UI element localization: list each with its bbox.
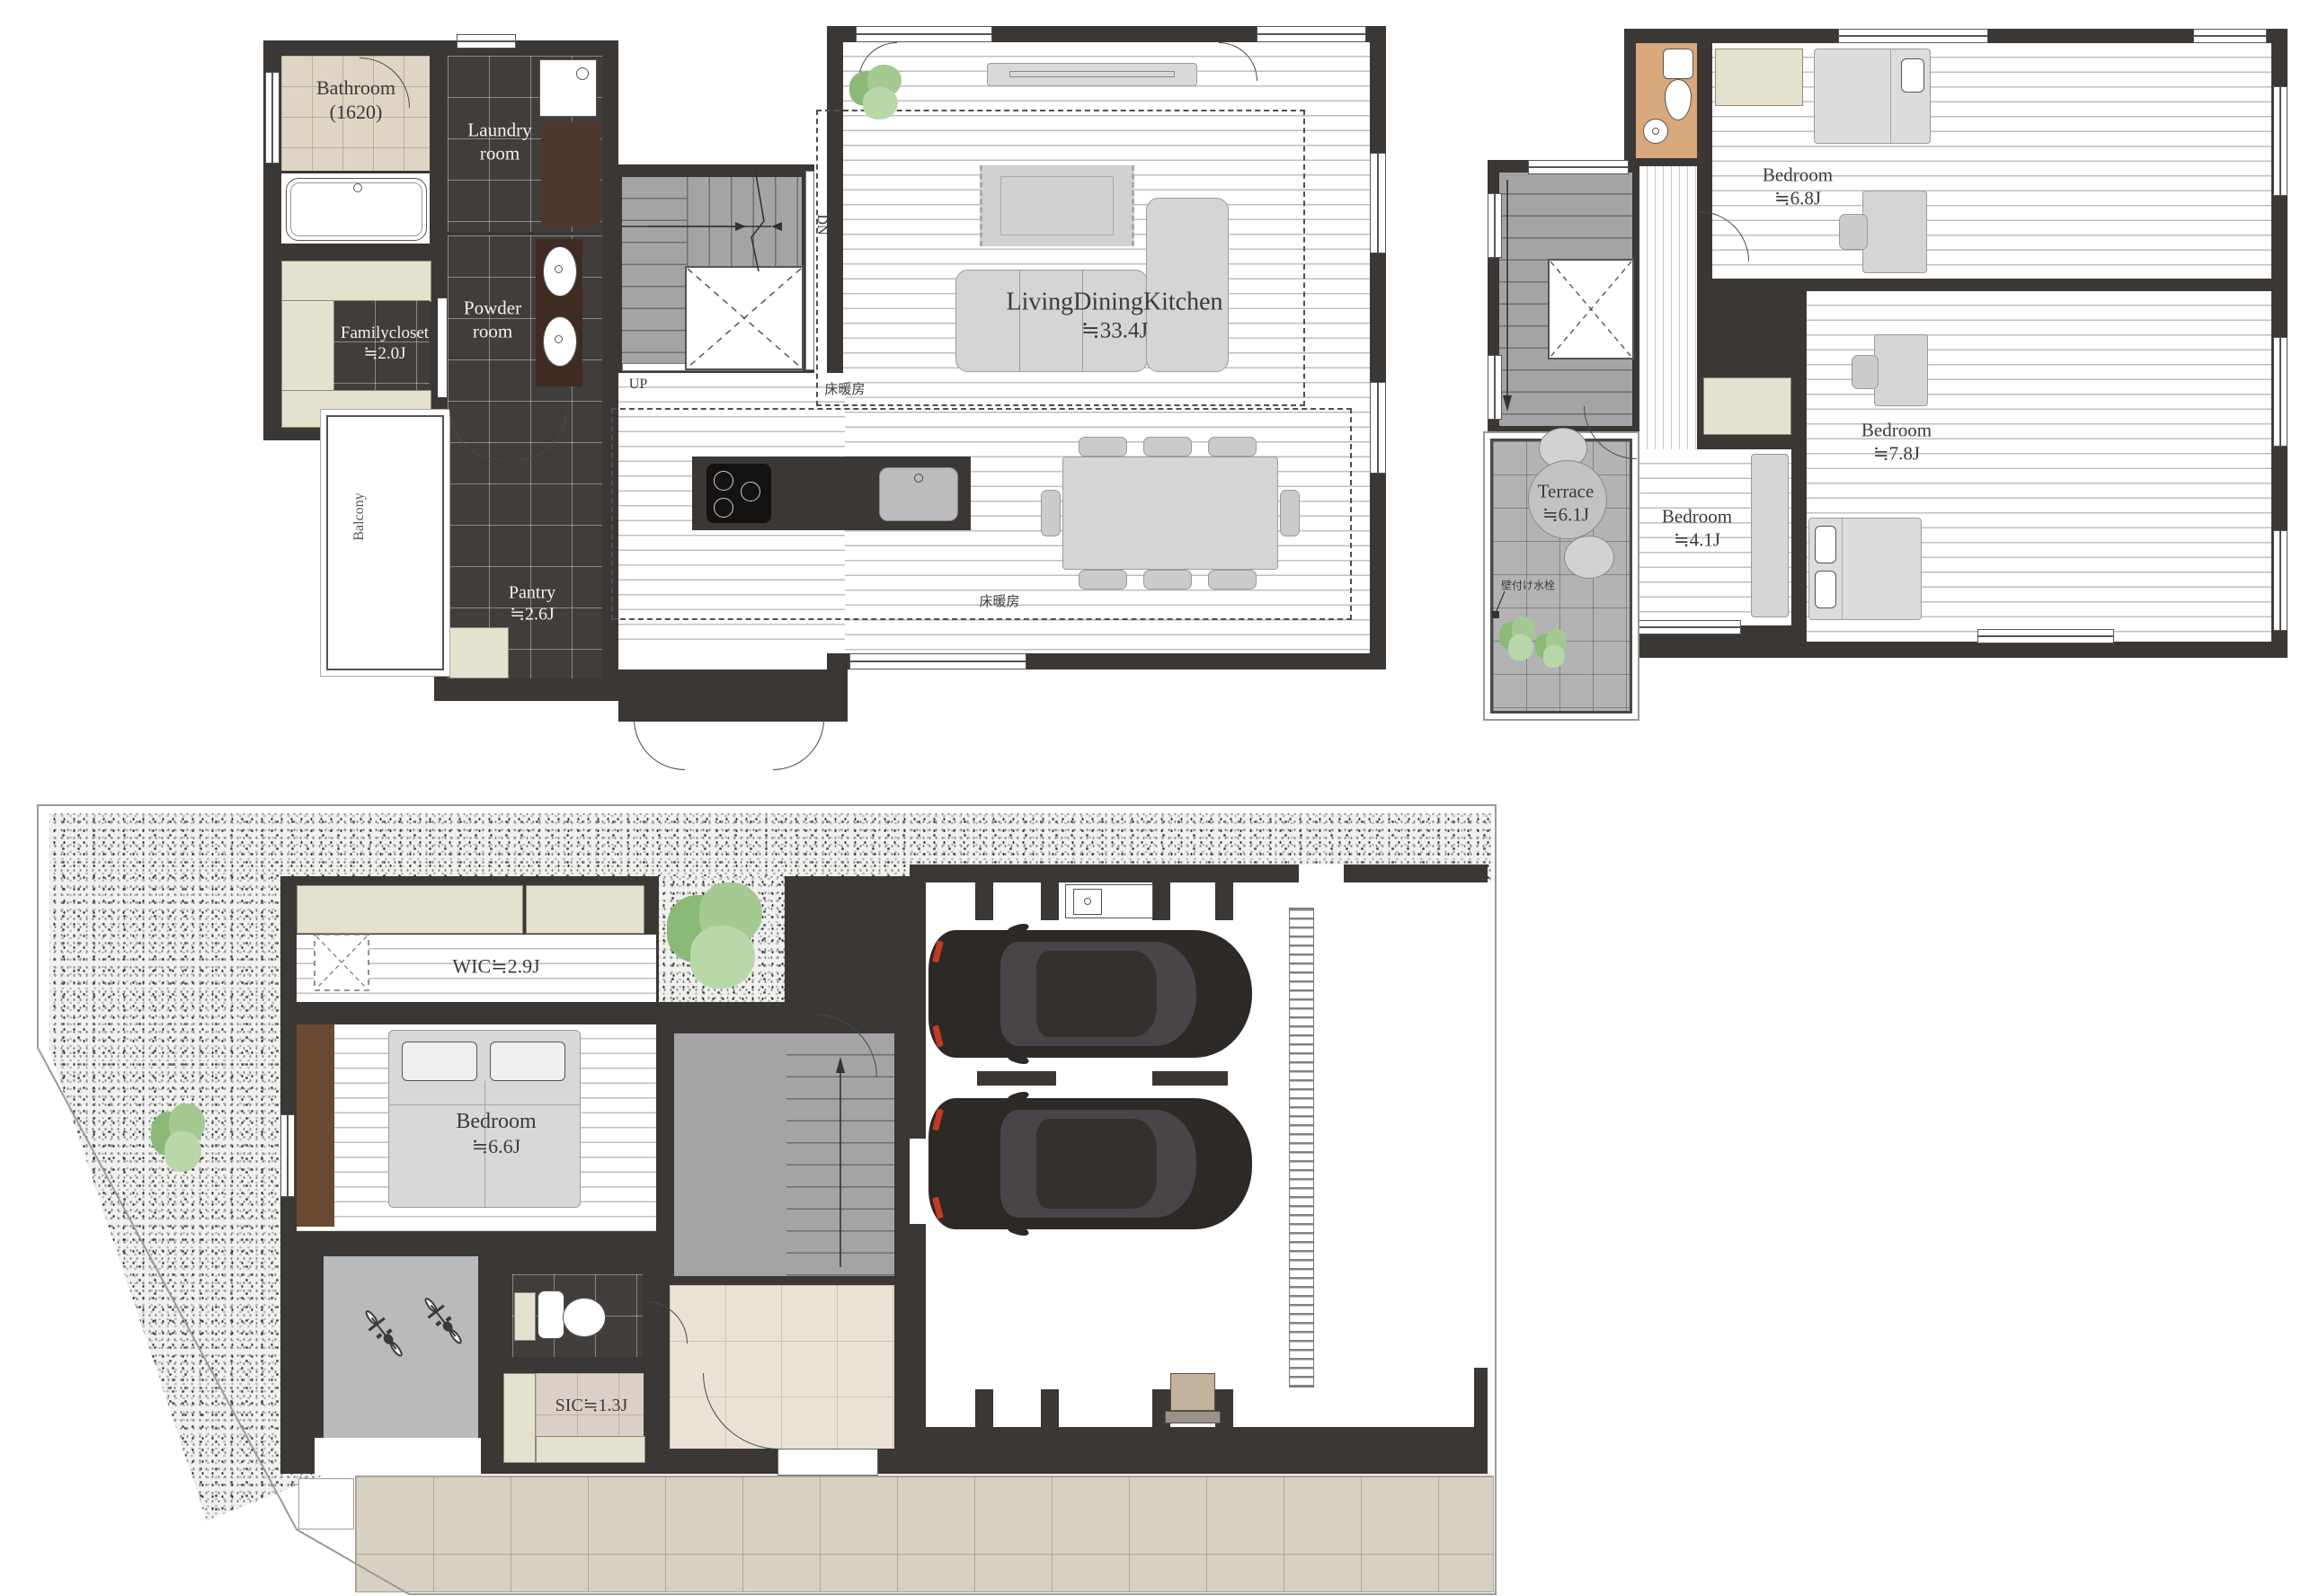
courtyard-tree	[667, 882, 775, 990]
car-roof	[1036, 1119, 1157, 1209]
yard-plant	[151, 1104, 212, 1174]
car-roof	[1036, 951, 1157, 1037]
balcony-label: Balcony	[351, 492, 369, 540]
wic-mirror-box	[313, 933, 370, 992]
floorplan-canvas: Bathroom (1620) Familycloset ≒2.0J Laund…	[0, 0, 2301, 1596]
bedroom78-label: Bedroom ≒7.8J	[1861, 419, 1932, 465]
garage-storage-box	[1170, 1373, 1215, 1411]
familycloset-label: Familycloset ≒2.0J	[341, 323, 429, 364]
wic-label: WIC≒2.9J	[452, 955, 539, 980]
car-2	[928, 1098, 1252, 1229]
ldk-label: LivingDiningKitchen ≒33.4J	[1006, 288, 1222, 346]
garage-storage-step	[1165, 1411, 1221, 1423]
pantry-label: Pantry ≒2.6J	[509, 582, 555, 626]
floor-heating-label-2: 床暖房	[979, 594, 1019, 610]
floor-heating-label-1: 床暖房	[824, 382, 865, 398]
sic-label: SIC≒1.3J	[555, 1395, 628, 1416]
laundry-label: Laundry room	[467, 119, 531, 164]
up-label: UP	[629, 376, 647, 394]
bedroom41-label: Bedroom ≒4.1J	[1662, 505, 1732, 551]
leaf	[690, 926, 755, 989]
floor1-plan: WIC≒2.9J Bedroom ≒6.6J	[0, 0, 2301, 1596]
stair-arrow-1f	[804, 1042, 876, 1276]
powder-label: Powder room	[464, 297, 521, 342]
bicycle-icons	[331, 1265, 475, 1436]
bedroom66-label: Bedroom ≒6.6J	[456, 1109, 536, 1159]
bedroom68-label: Bedroom ≒6.8J	[1763, 164, 1833, 209]
faucet-label: 壁付け水栓	[1501, 580, 1555, 593]
bathroom-label: Bathroom (1620)	[316, 76, 395, 125]
terrace-label: Terrace ≒6.1J	[1538, 480, 1595, 526]
leaf	[164, 1131, 201, 1172]
dn-label: DN	[813, 214, 831, 235]
car-1	[928, 930, 1252, 1058]
